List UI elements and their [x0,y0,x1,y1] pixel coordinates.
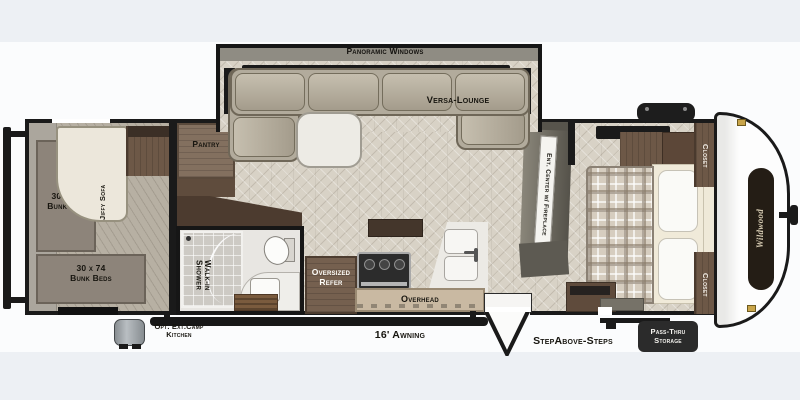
camp-kitchen-label-line2: Kitchen [146,331,212,339]
brand-label: Wildwood [756,209,765,248]
jiffy-sofa [56,126,128,222]
camp-kitchen-label: Opt. Ext.Camp Kitchen [146,323,212,340]
background-band-bottom [0,352,800,400]
rear-bumper [3,127,11,309]
closet-top-label: Closet [701,128,709,184]
refrigerator-label: Oversized Refer [305,268,357,287]
steps-label: StepAbove-Steps [528,336,618,348]
sofa-cushion [308,73,378,111]
burner-icon [364,259,375,270]
cap-hinge [737,119,746,126]
bunk-beds-bottom-label: 30 x 74 Bunk Beds [36,264,146,283]
overhead-cabinet-trim [357,304,483,308]
pillow [658,170,698,232]
bunk-room-window [52,119,110,123]
roof-vent-dot [645,107,649,111]
faucet-icon [464,251,476,254]
range-hood-cabinet [368,219,423,237]
stove-handle [361,282,407,286]
dinette-table [296,112,362,168]
towel-stack [234,294,278,311]
sofa-cushion [233,117,295,158]
bathroom: Walk-in Shower [176,226,304,315]
pass-thru-storage-badge: Pass-Thru Storage [638,321,698,352]
background-band-top [0,0,800,42]
ent-center-label: Ent. Center w/ Fireplace [540,152,552,235]
burner-icon [379,259,390,270]
bedroom-wall-gap [598,307,612,315]
roof-vent-dot [683,107,687,111]
galley-counter [177,179,235,197]
floor-plan-page: 30 x 74 Bunk Bed Jiffy Sofa 30 x 74 Bunk… [0,0,800,400]
versa-lounge-back [230,68,530,116]
panoramic-windows-label: Panoramic Windows [300,47,470,57]
pass-thru-label-line2: Storage [654,337,682,345]
kitchen-sink-bowl [444,256,478,281]
pillow [658,238,698,300]
pantry-label: Pantry [177,140,235,150]
sofa-cushion [235,73,305,111]
bedroom-wall [568,119,575,165]
shower-label: Shower [194,244,202,306]
awning-label: 16' Awning [350,330,450,342]
ent-center-base [519,240,569,277]
roof-vent [637,103,695,122]
wardrobe-top [128,126,172,137]
bunk-beds-bottom-name: Bunk Beds [36,274,146,284]
walk-in-label: Walk-in [202,244,210,306]
burner-icon [394,259,405,270]
jiffy-sofa-label: Jiffy Sofa [99,164,113,240]
camp-kitchen-foot [119,344,128,349]
bunk-room-wardrobe [126,126,172,176]
nightstand-tray [570,286,610,295]
camp-kitchen-foot [132,344,141,349]
bunk-room-rear-window [58,307,118,315]
refer-label: Refer [305,278,357,288]
closet-bottom-label: Closet [701,257,709,313]
camp-kitchen-unit [114,319,145,346]
brand-emblem: Wildwood [748,168,774,290]
stabilizer-foot [606,320,616,329]
walk-in-shower-label: Walk-in Shower [194,244,211,306]
overhead-label: Overhead [370,294,470,304]
stove [357,252,411,290]
cap-hinge [747,305,756,312]
shower-head-icon [186,236,191,241]
tongue-jack-knob [790,205,798,225]
versa-lounge-label: Versa-Lounge [398,96,518,107]
